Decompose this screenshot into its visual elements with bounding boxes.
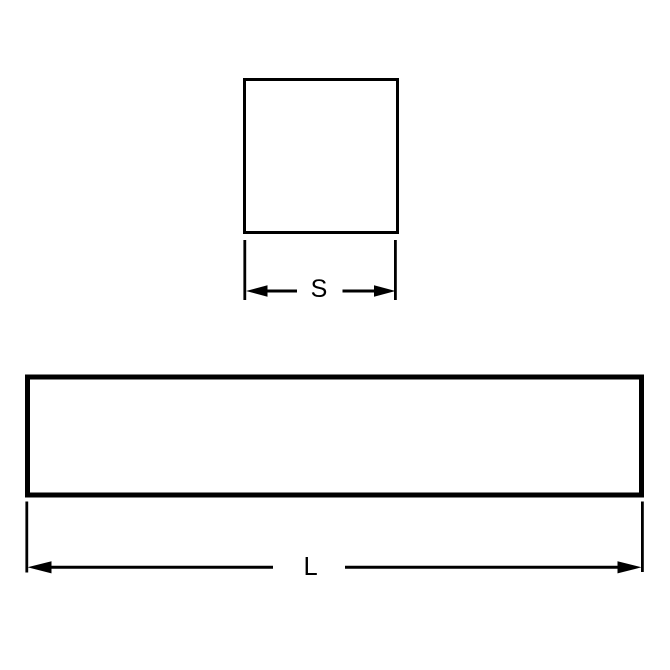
svg-text:L: L (304, 553, 318, 581)
svg-text:S: S (311, 275, 328, 303)
